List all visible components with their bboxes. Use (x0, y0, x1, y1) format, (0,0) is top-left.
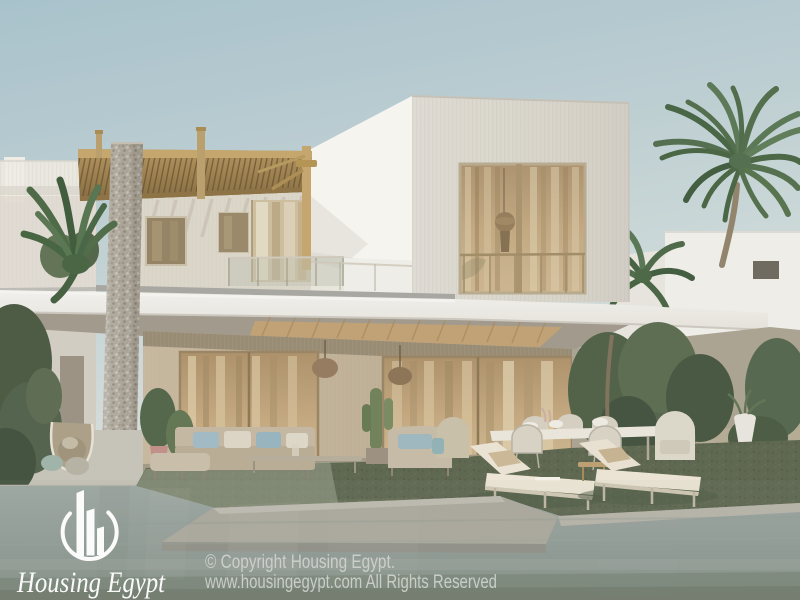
svg-text:Housing Egypt: Housing Egypt (16, 566, 165, 599)
svg-text:© Copyright Housing Egypt.: © Copyright Housing Egypt. (205, 552, 395, 573)
svg-text:www.housingegypt.com All Right: www.housingegypt.com All Rights Reserved (204, 572, 497, 593)
